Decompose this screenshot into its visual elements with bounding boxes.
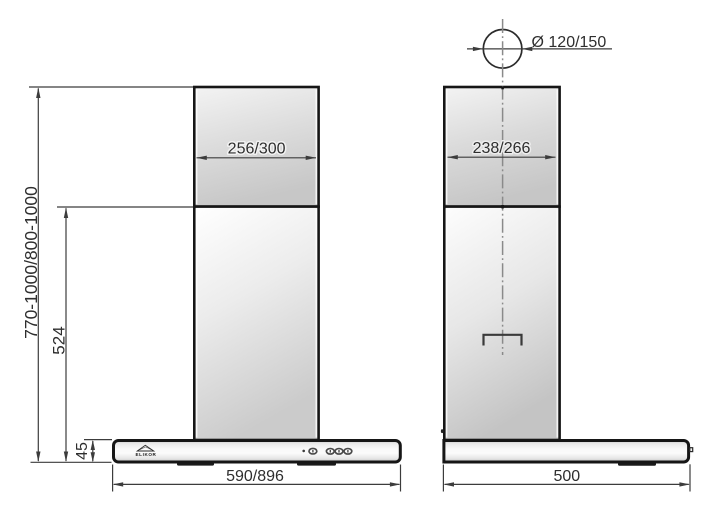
- svg-text:238/266: 238/266: [473, 140, 531, 157]
- svg-text:45: 45: [74, 442, 91, 460]
- svg-text:Ø 120/150: Ø 120/150: [532, 34, 607, 51]
- svg-text:ELIKOR: ELIKOR: [136, 452, 157, 457]
- svg-text:590/896: 590/896: [226, 468, 284, 485]
- svg-text:500: 500: [553, 468, 580, 485]
- svg-text:524: 524: [50, 326, 69, 354]
- svg-text:770-1000/800-1000: 770-1000/800-1000: [21, 186, 41, 339]
- svg-text:256/300: 256/300: [228, 141, 286, 158]
